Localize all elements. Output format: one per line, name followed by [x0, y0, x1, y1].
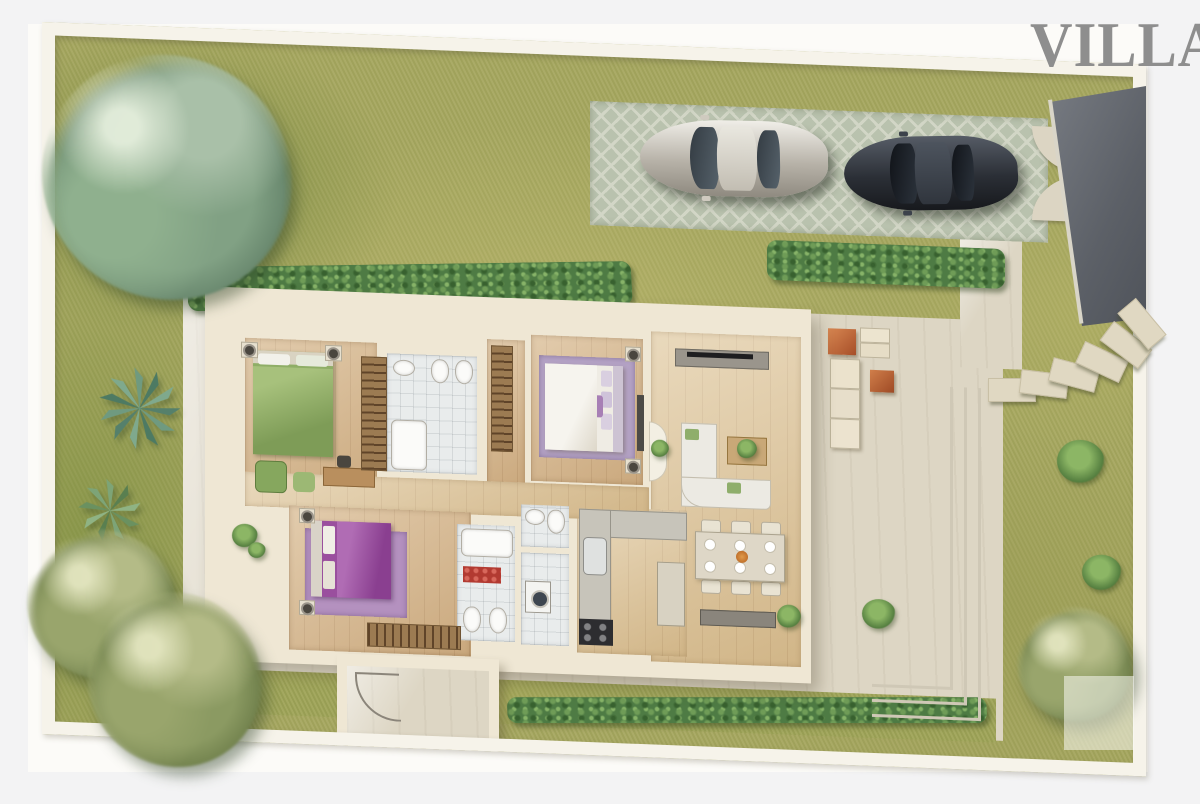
plate	[734, 562, 746, 574]
toilet-second	[463, 606, 481, 633]
kitchen-peninsula	[657, 562, 685, 627]
side-mirror	[899, 131, 908, 136]
purple-bed	[311, 520, 391, 599]
sink-main	[393, 359, 415, 376]
patio-shrub	[862, 599, 896, 630]
bathtub-second	[461, 528, 513, 558]
indoor-plant	[777, 604, 801, 629]
car-roof	[716, 126, 757, 191]
plan-title: VILLA 1	[1030, 8, 1200, 82]
washer-door	[531, 590, 549, 609]
desk-chair	[337, 455, 351, 468]
right-garden-shrub-1	[1057, 439, 1105, 485]
windshield	[689, 127, 719, 190]
green-bed-duvet	[253, 366, 333, 457]
plate	[764, 563, 776, 575]
shrub-near-house-2	[248, 542, 266, 559]
cream-ottoman-2	[830, 388, 860, 419]
sofa-pillow-green-2	[727, 482, 741, 494]
purple-bed-pillow-1	[323, 526, 335, 554]
agave-plant-1	[92, 364, 187, 453]
dining-table	[695, 531, 785, 582]
master-duvet	[545, 363, 597, 451]
dining-chair	[701, 579, 721, 594]
page: { "title": { "text": "VILLA 1" }, "palet…	[0, 0, 1200, 800]
bidet-main	[455, 360, 473, 385]
villa-site-plan	[42, 22, 1146, 776]
plate	[704, 538, 716, 550]
watermark-square	[1064, 676, 1134, 750]
dining-chair	[731, 580, 751, 595]
kitchen-sink	[583, 537, 607, 576]
side-mirror	[903, 210, 912, 215]
purple-bed-pillow-2	[323, 561, 335, 589]
plate	[704, 560, 716, 572]
car-roof	[913, 142, 954, 205]
bidet-second	[489, 607, 507, 634]
washing-machine	[525, 581, 551, 614]
orange-ottoman-1	[828, 328, 856, 355]
green-armchair	[255, 460, 287, 493]
cream-ottoman-3	[830, 418, 860, 449]
lamp-icon	[243, 344, 256, 357]
lamp-icon	[301, 510, 314, 523]
master-pillow-1	[601, 370, 612, 386]
silver-sedan	[637, 115, 830, 203]
wc-sink	[525, 509, 545, 526]
master-bed	[545, 363, 623, 452]
purple-bed-headboard	[311, 520, 322, 596]
entry-vestibule	[337, 653, 499, 755]
green-bed-pillow-right	[296, 355, 328, 367]
purple-duvet	[337, 521, 391, 599]
green-pouf	[293, 472, 315, 493]
side-mirror	[701, 115, 710, 120]
green-bed-pillow-left	[258, 353, 290, 365]
lamp-icon	[327, 347, 340, 360]
stove-cooktop	[579, 619, 613, 646]
wardrobe-bedroom-purple	[367, 622, 461, 650]
lamp-icon	[301, 602, 314, 615]
table-centerpiece	[736, 551, 748, 563]
right-garden-shrub-2	[1082, 554, 1122, 592]
orange-ottoman-2	[870, 370, 894, 393]
closet-shelving	[491, 345, 513, 452]
dining-sideboard	[700, 609, 776, 628]
bathtub-main	[391, 419, 427, 470]
plate	[764, 541, 776, 553]
rear-window	[757, 130, 781, 188]
house-footprint	[205, 286, 811, 683]
wardrobe-bedroom-green	[361, 356, 387, 471]
master-bed-headboard	[613, 366, 623, 452]
green-bed	[253, 350, 333, 457]
cream-ottoman-1	[830, 358, 860, 389]
sofa-pillow-green-1	[685, 429, 699, 441]
toilet-main	[431, 359, 449, 384]
lamp-icon	[627, 460, 640, 473]
side-mirror	[702, 196, 711, 201]
lamp-icon	[627, 348, 640, 361]
patio-step-edge-3	[872, 384, 981, 721]
sofa-horizontal-arm	[681, 477, 771, 510]
wc-toilet	[547, 509, 565, 534]
planter-plant	[651, 439, 669, 458]
red-rug	[463, 566, 501, 583]
hedge-driveway	[767, 240, 1005, 289]
coffee-table-plant	[737, 439, 757, 460]
dining-chair	[761, 582, 781, 597]
cream-cushion-1	[860, 327, 890, 343]
rear-window	[951, 145, 975, 201]
master-tv-panel	[637, 395, 644, 451]
cream-cushion-2	[860, 342, 890, 358]
dark-sedan	[840, 131, 1022, 216]
